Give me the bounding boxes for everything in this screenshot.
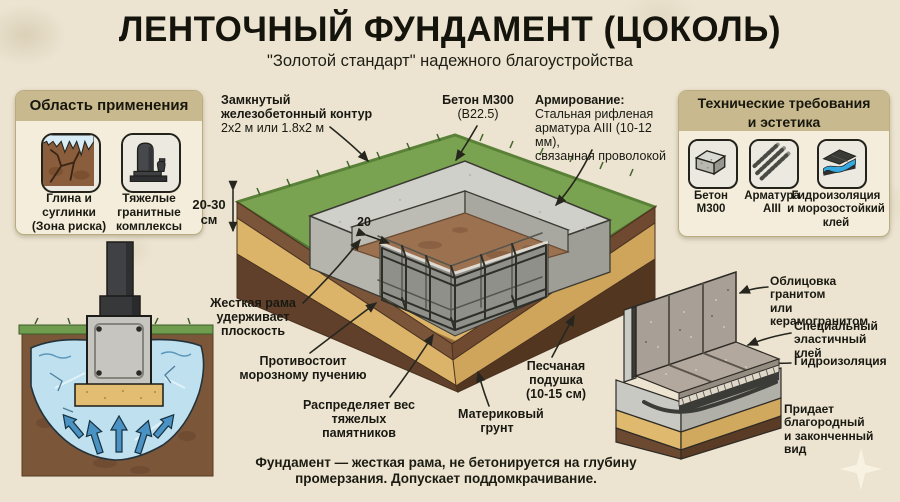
page-title: ЛЕНТОЧНЫЙ ФУНДАМЕНТ (ЦОКОЛЬ) bbox=[0, 10, 900, 50]
monument-cross-section bbox=[75, 242, 163, 406]
label-sand-pad: Песчаная подушка (10-15 см) bbox=[517, 359, 595, 401]
requirement-concrete-label: Бетон М300 bbox=[681, 190, 741, 217]
infographic-canvas: Область применения Глина и суглинки (Зон… bbox=[0, 0, 900, 502]
label-bedrock: Материковый грунт bbox=[458, 407, 536, 435]
callout-concrete: Бетон М300 (В22.5) bbox=[433, 93, 523, 121]
footnote: Фундамент — жесткая рама, не бетонируетс… bbox=[226, 455, 666, 488]
label-rigid-frame: Жесткая рама удерживает плоскость bbox=[203, 296, 303, 338]
requirement-waterproofing-label: Гидроизоляция и морозостойкий клей bbox=[783, 190, 889, 230]
application-granite-label: Тяжелые гранитные комплексы bbox=[107, 192, 191, 234]
rebar-icon bbox=[749, 139, 799, 189]
requirements-panel-title: Технические требования и эстетика bbox=[679, 91, 889, 131]
label-frost-resistance: Противостоит морозному пучению bbox=[238, 354, 368, 382]
width-dimension-label: 20 bbox=[352, 215, 376, 229]
applications-panel-title: Область применения bbox=[16, 91, 202, 121]
gravestone-icon bbox=[121, 133, 181, 193]
callout-reinforcement: Армирование: Стальная рифленая арматура … bbox=[535, 93, 675, 163]
application-clay-label: Глина и суглинки (Зона риска) bbox=[24, 192, 114, 234]
waterproofing-icon bbox=[817, 139, 867, 189]
page-subtitle: "Золотой стандарт" надежного благоустрой… bbox=[0, 52, 900, 71]
requirements-panel: Технические требования и эстетика bbox=[678, 90, 890, 237]
cracked-clay-icon bbox=[41, 133, 101, 193]
label-weight-distribution: Распределяет вес тяжелых памятников bbox=[294, 398, 424, 440]
label-waterproofing: Гидроизоляция bbox=[794, 355, 894, 368]
concrete-block-icon bbox=[688, 139, 738, 189]
label-aesthetic: Придает благородный и законченный вид bbox=[784, 403, 896, 457]
callout-contour-title: Замкнутый железобетонный контур bbox=[221, 93, 372, 121]
callout-concrete-title: Бетон М300 bbox=[442, 93, 514, 107]
frost-heave-inset bbox=[15, 238, 215, 483]
callout-reinforcement-title: Армирование: bbox=[535, 93, 625, 107]
callout-contour: Замкнутый железобетонный контур 2х2 м ил… bbox=[221, 93, 381, 135]
applications-panel: Область применения Глина и суглинки (Зон… bbox=[15, 90, 203, 235]
depth-dimension-label: 20-30 см bbox=[188, 198, 230, 227]
callout-contour-sub: 2х2 м или 1.8х2 м bbox=[221, 121, 381, 135]
callout-reinforcement-body: Стальная рифленая арматура AIII (10-12 м… bbox=[535, 107, 675, 163]
callout-concrete-sub: (В22.5) bbox=[433, 107, 523, 121]
